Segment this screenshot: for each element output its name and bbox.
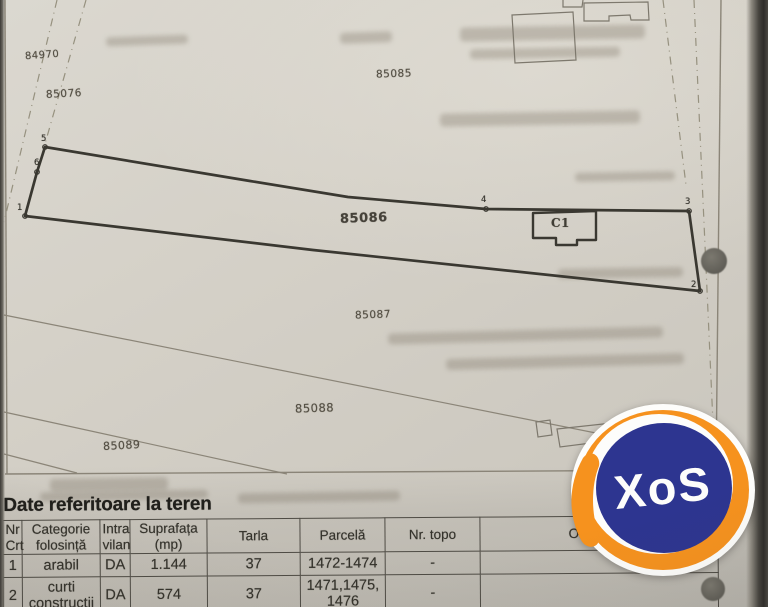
cell-suprafata: 574 — [130, 576, 207, 607]
scanned-cadastral-plan: 84970 85076 85085 85086 85087 85088 8508… — [0, 0, 768, 607]
cell-parcela: 1472-1474 — [300, 552, 385, 576]
terrain-title: Date referitoare la teren — [3, 494, 211, 517]
photo-edge-left — [0, 0, 5, 607]
cell-categorie: curti constructii — [22, 577, 100, 607]
cell-intra-vilan: DA — [100, 554, 130, 577]
col-header-nr-topo: Nr. topo — [385, 517, 480, 552]
cell-categorie: arabil — [22, 554, 100, 578]
cell-parcela: 1471,1475,1476 — [300, 575, 385, 607]
cell-nr-topo: - — [385, 551, 480, 575]
xos-watermark-logo: XoS — [563, 398, 763, 583]
cell-tarla: 37 — [207, 552, 300, 576]
cell-nr-topo: - — [385, 574, 480, 607]
watermark-text: XoS — [612, 456, 714, 519]
col-header-suprafata: Suprafața (mp) — [130, 519, 207, 554]
punch-hole-top — [701, 248, 727, 274]
col-header-intra-vilan: Intra vilan — [100, 520, 130, 554]
cell-nr-crt: 1 — [3, 554, 22, 577]
col-header-nr-crt: Nr Crt — [3, 520, 22, 554]
col-header-tarla: Tarla — [207, 518, 300, 553]
cell-tarla: 37 — [207, 575, 300, 607]
cell-nr-crt: 2 — [3, 577, 22, 607]
cell-suprafata: 1.144 — [130, 553, 207, 577]
cell-intra-vilan: DA — [100, 577, 130, 607]
col-header-parcela: Parcelă — [300, 518, 385, 553]
col-header-categorie-folosinta: Categorie folosință — [22, 520, 100, 555]
